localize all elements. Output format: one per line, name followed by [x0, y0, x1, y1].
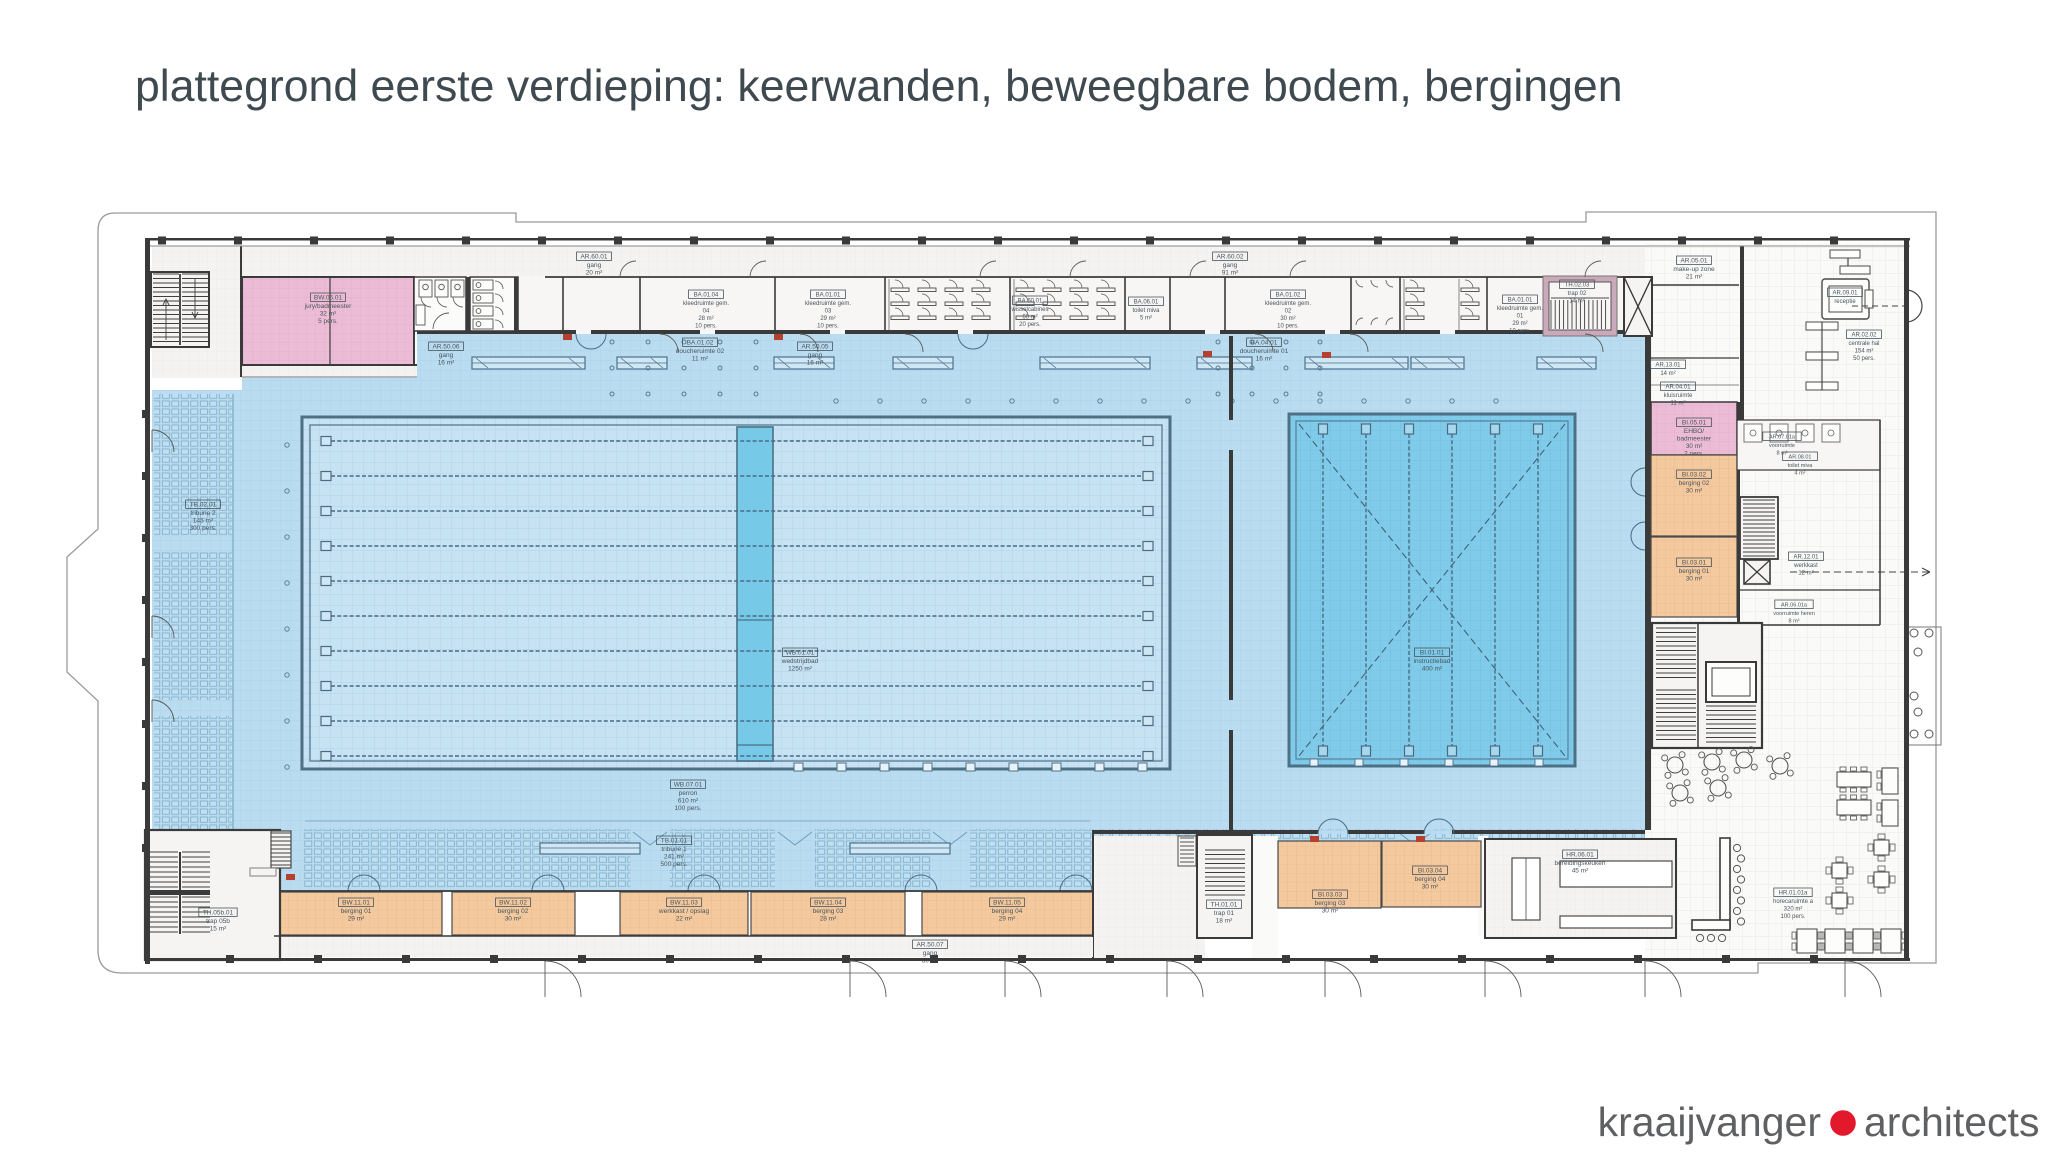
svg-text:21 m²: 21 m² — [1686, 274, 1703, 281]
svg-text:BW.06.01: BW.06.01 — [314, 295, 343, 302]
svg-text:BA.60.01: BA.60.01 — [1018, 299, 1043, 305]
svg-text:EHBO/: EHBO/ — [1684, 428, 1704, 435]
svg-text:berging 04: berging 04 — [1415, 876, 1446, 883]
svg-text:29 m²: 29 m² — [348, 916, 365, 923]
svg-text:TB.01.01: TB.01.01 — [661, 838, 688, 845]
svg-text:BA.01.01: BA.01.01 — [816, 293, 841, 299]
svg-text:wisselcabines: wisselcabines — [1010, 307, 1048, 313]
svg-text:berging 03: berging 03 — [813, 908, 844, 915]
svg-text:91 m²: 91 m² — [1222, 270, 1239, 277]
svg-text:1250 m²: 1250 m² — [788, 666, 813, 673]
svg-text:10 pers.: 10 pers. — [1277, 324, 1299, 330]
svg-text:berging 02: berging 02 — [498, 908, 529, 915]
svg-text:11 m²: 11 m² — [1671, 401, 1686, 407]
svg-text:tribune 1: tribune 1 — [661, 846, 687, 853]
svg-text:AR.12.01: AR.12.01 — [1793, 555, 1819, 561]
svg-text:HR.06.01: HR.06.01 — [1566, 852, 1594, 859]
svg-text:5 pers.: 5 pers. — [318, 318, 338, 325]
svg-text:154 m²: 154 m² — [1855, 349, 1874, 355]
svg-text:30 m²: 30 m² — [1322, 908, 1339, 915]
svg-text:gang: gang — [1223, 262, 1238, 269]
svg-text:architects: architects — [1864, 1099, 2039, 1145]
svg-text:TH.02.03: TH.02.03 — [1565, 283, 1590, 289]
svg-text:kraaijvanger: kraaijvanger — [1598, 1099, 1821, 1145]
svg-text:receptie: receptie — [1834, 299, 1856, 305]
svg-text:BW.11.05: BW.11.05 — [993, 900, 1021, 907]
svg-text:toilet miva: toilet miva — [1132, 308, 1160, 314]
svg-text:8 m²: 8 m² — [1777, 451, 1788, 457]
svg-text:kleedruimte gem.: kleedruimte gem. — [1497, 306, 1543, 312]
svg-text:AR.50.06: AR.50.06 — [432, 344, 459, 351]
svg-text:voorruimte: voorruimte — [1769, 443, 1795, 449]
svg-text:14 m²: 14 m² — [1569, 299, 1584, 305]
svg-text:29 m²: 29 m² — [999, 916, 1016, 923]
svg-text:32 m²: 32 m² — [320, 311, 337, 318]
svg-text:AR.09.01: AR.09.01 — [1832, 291, 1858, 297]
svg-text:TH.05b.01: TH.05b.01 — [203, 910, 234, 917]
svg-text:500 pers.: 500 pers. — [660, 861, 687, 868]
svg-text:30 m²: 30 m² — [1422, 884, 1439, 891]
svg-text:16 m²: 16 m² — [807, 360, 824, 367]
svg-text:AR.60.02: AR.60.02 — [1216, 254, 1243, 261]
svg-text:14 m²: 14 m² — [1660, 371, 1675, 377]
svg-text:AR.50.07: AR.50.07 — [916, 942, 943, 949]
svg-text:AR.13.01: AR.13.01 — [1655, 363, 1681, 369]
svg-text:make-up zone: make-up zone — [1673, 266, 1715, 273]
svg-text:TH.01.01: TH.01.01 — [1211, 902, 1238, 909]
svg-text:01: 01 — [1517, 314, 1524, 320]
svg-text:BA.06.01: BA.06.01 — [1134, 300, 1159, 306]
svg-text:29 m²: 29 m² — [820, 316, 835, 322]
svg-text:doucheruimte 01: doucheruimte 01 — [1240, 348, 1289, 355]
svg-text:BW.11.03: BW.11.03 — [670, 900, 698, 907]
svg-text:30 m²: 30 m² — [505, 916, 522, 923]
svg-text:610 m²: 610 m² — [678, 798, 699, 805]
svg-text:320 m²: 320 m² — [1784, 907, 1803, 913]
svg-text:BA.01.04: BA.01.04 — [694, 293, 719, 299]
svg-text:plattegrond eerste verdieping:: plattegrond eerste verdieping: keerwande… — [135, 62, 1623, 111]
svg-text:berging 02: berging 02 — [1679, 480, 1710, 487]
svg-text:AR.07.01a: AR.07.01a — [1769, 435, 1796, 441]
svg-text:28 m²: 28 m² — [698, 316, 713, 322]
svg-text:30 m²: 30 m² — [1686, 488, 1703, 495]
svg-text:BI.03.01: BI.03.01 — [1682, 560, 1707, 567]
svg-text:berging 01: berging 01 — [341, 908, 372, 915]
svg-text:100 pers.: 100 pers. — [1780, 914, 1805, 920]
svg-text:BW.11.04: BW.11.04 — [814, 900, 842, 907]
svg-text:trap 05b: trap 05b — [206, 918, 230, 925]
svg-text:WB.01.01: WB.01.01 — [786, 650, 815, 657]
svg-text:BI.05.01: BI.05.01 — [1682, 420, 1707, 427]
svg-text:50 pers.: 50 pers. — [1853, 356, 1875, 362]
svg-text:perron: perron — [679, 790, 698, 797]
svg-text:BA.01.02: BA.01.02 — [687, 340, 714, 347]
svg-text:AR.60.01: AR.60.01 — [580, 254, 607, 261]
svg-text:100 pers.: 100 pers. — [674, 805, 701, 812]
svg-text:berging 03: berging 03 — [1315, 900, 1346, 907]
svg-text:20 m²: 20 m² — [586, 270, 603, 277]
svg-text:badmeester: badmeester — [1677, 436, 1712, 443]
svg-text:BI.03.02: BI.03.02 — [1682, 472, 1707, 479]
svg-text:kleedruimte gem.: kleedruimte gem. — [805, 301, 851, 307]
svg-text:15 m²: 15 m² — [210, 926, 227, 933]
svg-text:centrale hal: centrale hal — [1848, 341, 1879, 347]
svg-text:28 m²: 28 m² — [820, 916, 837, 923]
svg-text:10 pers.: 10 pers. — [695, 324, 717, 330]
svg-text:145 m²: 145 m² — [193, 518, 214, 525]
svg-text:BA.01.02: BA.01.02 — [1276, 293, 1301, 299]
svg-text:02: 02 — [1285, 309, 1292, 315]
svg-text:berging 01: berging 01 — [1679, 568, 1710, 575]
svg-text:16 m²: 16 m² — [1256, 356, 1273, 363]
svg-text:45 m²: 45 m² — [1572, 868, 1589, 875]
svg-text:berging 04: berging 04 — [992, 908, 1023, 915]
svg-text:gang: gang — [587, 262, 602, 269]
svg-text:werkkast / opslag: werkkast / opslag — [658, 908, 710, 915]
svg-text:BW.11.01: BW.11.01 — [342, 900, 370, 907]
svg-text:12 m²: 12 m² — [1798, 571, 1813, 577]
svg-text:BI.03.03: BI.03.03 — [1318, 892, 1343, 899]
svg-text:AR.05.01: AR.05.01 — [1680, 258, 1707, 265]
svg-text:voorruimte heren: voorruimte heren — [1773, 611, 1815, 617]
svg-text:AR.06.01a: AR.06.01a — [1781, 603, 1808, 609]
svg-text:400 m²: 400 m² — [1422, 666, 1443, 673]
svg-text:11 m²: 11 m² — [692, 356, 709, 363]
svg-text:04: 04 — [703, 309, 710, 315]
svg-text:BW.11.02: BW.11.02 — [499, 900, 527, 907]
svg-text:AR.08.01: AR.08.01 — [1789, 455, 1812, 461]
svg-text:03: 03 — [825, 309, 832, 315]
svg-text:5 m²: 5 m² — [1140, 316, 1152, 322]
svg-text:AR.50.05: AR.50.05 — [801, 344, 828, 351]
svg-text:241 m²: 241 m² — [664, 854, 685, 861]
svg-text:10 pers.: 10 pers. — [1509, 329, 1531, 335]
svg-text:kleedruimte gem.: kleedruimte gem. — [683, 301, 729, 307]
svg-text:BA.01.01: BA.01.01 — [1508, 298, 1533, 304]
svg-text:BI.01.01: BI.01.01 — [1420, 650, 1445, 657]
svg-text:toilet miva: toilet miva — [1788, 463, 1814, 469]
svg-text:BI.03.04: BI.03.04 — [1418, 868, 1443, 875]
svg-text:HR.01.01a: HR.01.01a — [1779, 891, 1808, 897]
svg-text:BA.04.01: BA.04.01 — [1251, 340, 1278, 347]
svg-text:20 pers.: 20 pers. — [1019, 322, 1041, 328]
svg-text:trap 01: trap 01 — [1214, 910, 1235, 917]
svg-text:60 m²: 60 m² — [1022, 315, 1037, 321]
svg-text:horecaruimte a: horecaruimte a — [1773, 899, 1814, 905]
svg-text:300 pers.: 300 pers. — [189, 525, 216, 532]
svg-text:werkkast: werkkast — [1793, 563, 1818, 569]
svg-text:29 m²: 29 m² — [1512, 321, 1527, 327]
svg-text:8 m²: 8 m² — [1789, 619, 1800, 625]
svg-text:16 m²: 16 m² — [438, 360, 455, 367]
svg-text:gang: gang — [808, 352, 823, 359]
svg-text:trap 02: trap 02 — [1568, 291, 1587, 297]
svg-text:30 m²: 30 m² — [1280, 316, 1295, 322]
svg-text:22 m²: 22 m² — [676, 916, 693, 923]
svg-text:wedstrijdbad: wedstrijdbad — [781, 658, 819, 665]
svg-text:doucheruimte 02: doucheruimte 02 — [676, 348, 725, 355]
svg-text:18 m²: 18 m² — [1216, 918, 1233, 925]
svg-text:30 m²: 30 m² — [1686, 576, 1703, 583]
svg-text:gang: gang — [439, 352, 454, 359]
svg-text:kluisruimte: kluisruimte — [1664, 393, 1693, 399]
svg-text:10 pers.: 10 pers. — [817, 324, 839, 330]
svg-text:4 m²: 4 m² — [1795, 471, 1806, 477]
svg-text:WB.07.01: WB.07.01 — [674, 782, 703, 789]
svg-text:instructiebad: instructiebad — [1414, 658, 1451, 665]
svg-text:30 m²: 30 m² — [1686, 443, 1703, 450]
svg-text:bereidingskeuken: bereidingskeuken — [1555, 860, 1606, 867]
svg-text:AR.02.02: AR.02.02 — [1851, 333, 1877, 339]
svg-text:TB.02.01: TB.02.01 — [190, 502, 217, 509]
svg-text:kleedruimte gem.: kleedruimte gem. — [1265, 301, 1311, 307]
svg-text:jury/badmeester: jury/badmeester — [304, 303, 352, 310]
svg-text:AR.04.01: AR.04.01 — [1665, 385, 1691, 391]
svg-text:tribune 2: tribune 2 — [190, 510, 216, 517]
